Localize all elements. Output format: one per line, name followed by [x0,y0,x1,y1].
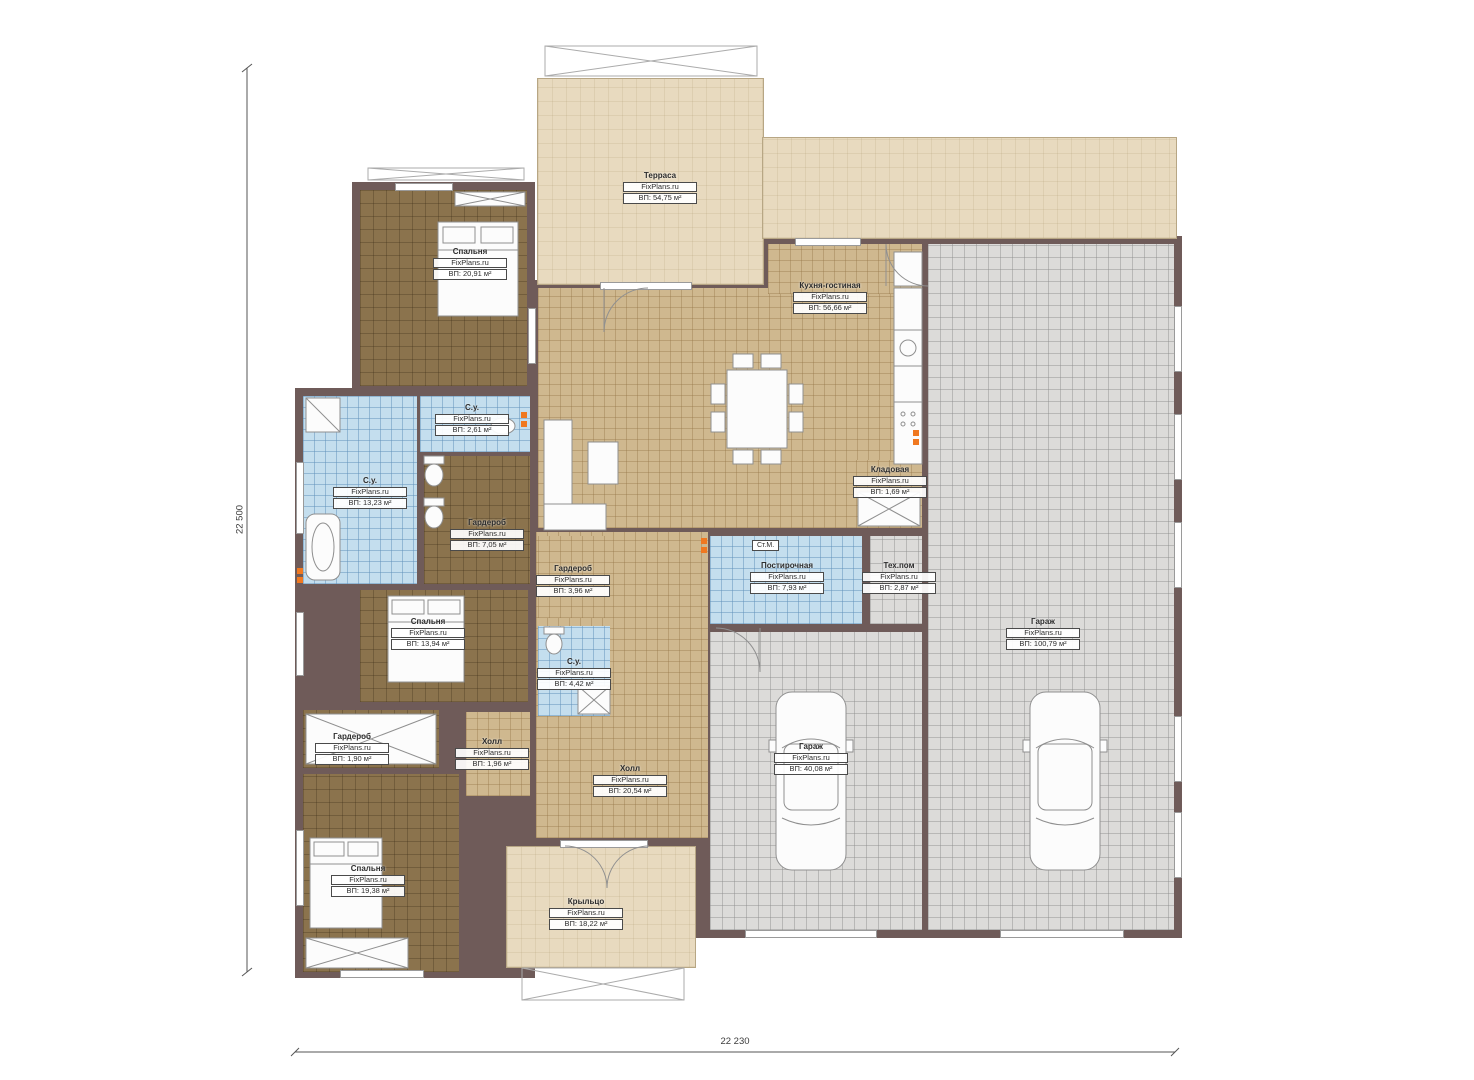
room-area: ВП: 1,96 м² [455,759,529,769]
window [296,612,304,676]
room-name: Холл [584,765,676,774]
room-label-hall-big: Холл FixPlans.ru ВП: 20,54 м² [584,765,676,798]
room-label-wardrobe-1: Гардероб FixPlans.ru ВП: 7,05 м² [441,519,533,552]
room-label-garage-big: Гараж FixPlans.ru ВП: 100,79 м² [997,618,1089,651]
room-label-bath-big: С.у. FixPlans.ru ВП: 13,23 м² [324,477,416,510]
room-watermark: FixPlans.ru [593,775,667,785]
entry-door [560,840,648,848]
room-label-tech-room: Тех.пом FixPlans.ru ВП: 2,87 м² [853,562,945,595]
room-name: Постирочная [741,562,833,571]
room-label-garage-small: Гараж FixPlans.ru ВП: 40,08 м² [765,743,857,776]
room-area: ВП: 19,38 м² [331,886,405,896]
floor-garage-small [710,632,922,930]
room-watermark: FixPlans.ru [433,258,507,268]
room-name: Гараж [997,618,1089,627]
garage-door [745,930,877,938]
room-label-laundry: Постирочная FixPlans.ru ВП: 7,93 м² [741,562,833,595]
room-area: ВП: 7,93 м² [750,583,824,593]
window [1174,812,1182,878]
washer-label: Ст.М. [752,540,779,551]
room-area: ВП: 2,61 м² [435,425,509,435]
room-watermark: FixPlans.ru [315,743,389,753]
room-label-bedroom-1: Спальня FixPlans.ru ВП: 20,91 м² [424,248,516,281]
room-area: ВП: 40,08 м² [774,764,848,774]
room-watermark: FixPlans.ru [333,487,407,497]
room-watermark: FixPlans.ru [862,572,936,582]
window [1174,716,1182,782]
room-label-wardrobe-3: Гардероб FixPlans.ru ВП: 1,90 м² [306,733,398,766]
room-label-bath-3: С.у. FixPlans.ru ВП: 4,42 м² [528,658,620,691]
room-label-bath-small: С.у. FixPlans.ru ВП: 2,61 м² [426,404,518,437]
room-name: С.у. [324,477,416,486]
room-name: С.у. [528,658,620,667]
room-watermark: FixPlans.ru [391,628,465,638]
floor-terrace [762,137,1177,239]
radiator-icon [297,568,303,583]
room-name: Спальня [382,618,474,627]
room-watermark: FixPlans.ru [774,753,848,763]
room-label-porch: Крыльцо FixPlans.ru ВП: 18,22 м² [540,898,632,931]
room-label-hall-small: Холл FixPlans.ru ВП: 1,96 м² [446,738,538,771]
room-area: ВП: 4,42 м² [537,679,611,689]
radiator-icon [701,538,707,553]
room-watermark: FixPlans.ru [750,572,824,582]
room-label-pantry: Кладовая FixPlans.ru ВП: 1,69 м² [844,466,936,499]
door-opening [600,282,692,290]
room-watermark: FixPlans.ru [435,414,509,424]
room-watermark: FixPlans.ru [793,292,867,302]
room-area: ВП: 13,94 м² [391,639,465,649]
room-name: Спальня [424,248,516,257]
room-watermark: FixPlans.ru [455,748,529,758]
room-name: Крыльцо [540,898,632,907]
room-area: ВП: 100,79 м² [1006,639,1080,649]
room-area: ВП: 13,23 м² [333,498,407,508]
room-area: ВП: 7,05 м² [450,540,524,550]
room-area: ВП: 20,91 м² [433,269,507,279]
room-area: ВП: 56,66 м² [793,303,867,313]
room-area: ВП: 1,69 м² [853,487,927,497]
floor-plan-canvas: 22 500 22 230 Ст.М. Терраса FixPlans.ru … [0,0,1474,1080]
room-watermark: FixPlans.ru [853,476,927,486]
radiator-icon [521,412,527,427]
room-name: Гараж [765,743,857,752]
room-name: Терраса [614,172,706,181]
room-label-bedroom-2: Спальня FixPlans.ru ВП: 13,94 м² [382,618,474,651]
radiator-icon [913,430,919,445]
room-area: ВП: 1,90 м² [315,754,389,764]
room-name: Кладовая [844,466,936,475]
room-area: ВП: 18,22 м² [549,919,623,929]
room-area: ВП: 3,96 м² [536,586,610,596]
room-name: Гардероб [527,565,619,574]
room-name: Холл [446,738,538,747]
garage-door [1000,930,1124,938]
dimension-label-left: 22 500 [235,495,246,545]
window [296,830,304,906]
room-label-bedroom-3: Спальня FixPlans.ru ВП: 19,38 м² [322,865,414,898]
room-name: Гардероб [306,733,398,742]
room-watermark: FixPlans.ru [549,908,623,918]
room-name: Гардероб [441,519,533,528]
window [296,462,304,534]
room-name: Тех.пом [853,562,945,571]
window [795,238,861,246]
window [1174,414,1182,480]
floor-bedroom-1 [360,190,527,386]
dimension-label-bottom: 22 230 [705,1036,765,1047]
window [395,183,453,191]
room-watermark: FixPlans.ru [331,875,405,885]
room-label-kitchen-living: Кухня-гостиная FixPlans.ru ВП: 56,66 м² [784,282,876,315]
room-watermark: FixPlans.ru [536,575,610,585]
room-area: ВП: 20,54 м² [593,786,667,796]
room-watermark: FixPlans.ru [623,182,697,192]
room-name: Спальня [322,865,414,874]
room-name: С.у. [426,404,518,413]
window [1174,522,1182,588]
room-watermark: FixPlans.ru [537,668,611,678]
room-name: Кухня-гостиная [784,282,876,291]
room-label-terrace: Терраса FixPlans.ru ВП: 54,75 м² [614,172,706,205]
window [1174,306,1182,372]
room-area: ВП: 2,87 м² [862,583,936,593]
room-label-wardrobe-2: Гардероб FixPlans.ru ВП: 3,96 м² [527,565,619,598]
room-watermark: FixPlans.ru [1006,628,1080,638]
window [340,970,424,978]
floor-garage-big [928,244,1174,930]
door-opening [528,308,536,364]
room-watermark: FixPlans.ru [450,529,524,539]
room-area: ВП: 54,75 м² [623,193,697,203]
